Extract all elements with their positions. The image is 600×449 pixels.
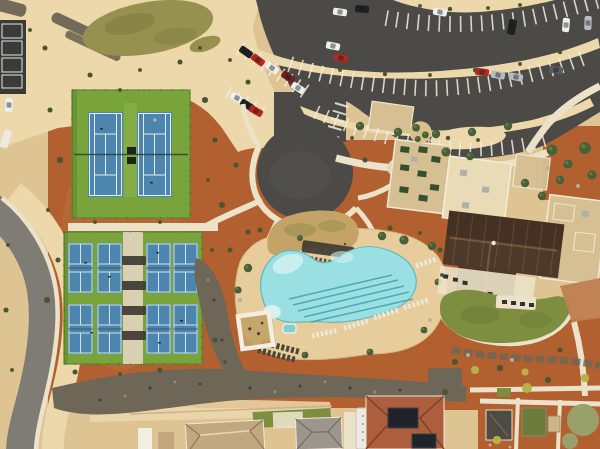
parked-car [5, 98, 13, 113]
shade-structure [238, 312, 277, 352]
small-structure [138, 428, 152, 449]
driveway [344, 412, 356, 449]
solar-panel [412, 434, 436, 448]
spa [283, 324, 296, 333]
solar-panel [388, 408, 418, 428]
cul-de-sac [257, 124, 353, 220]
tennis-court-complex [72, 90, 190, 218]
center-walkway [123, 232, 143, 364]
aerial-photo [0, 0, 600, 449]
house-roof-tan [185, 420, 264, 449]
lawn-patch [497, 388, 511, 397]
screenshot [0, 0, 600, 449]
house-roof-red-tile [366, 396, 444, 449]
house-roof-gray [295, 417, 342, 449]
garden-bed [548, 416, 560, 432]
shed-roof [158, 432, 174, 449]
flat-roof-e [513, 154, 551, 190]
sage-mound [567, 404, 599, 436]
garden-bed [522, 408, 546, 436]
court-equipment [127, 147, 136, 154]
pickleball-court-complex [64, 232, 202, 364]
small-building-roof [368, 101, 413, 135]
